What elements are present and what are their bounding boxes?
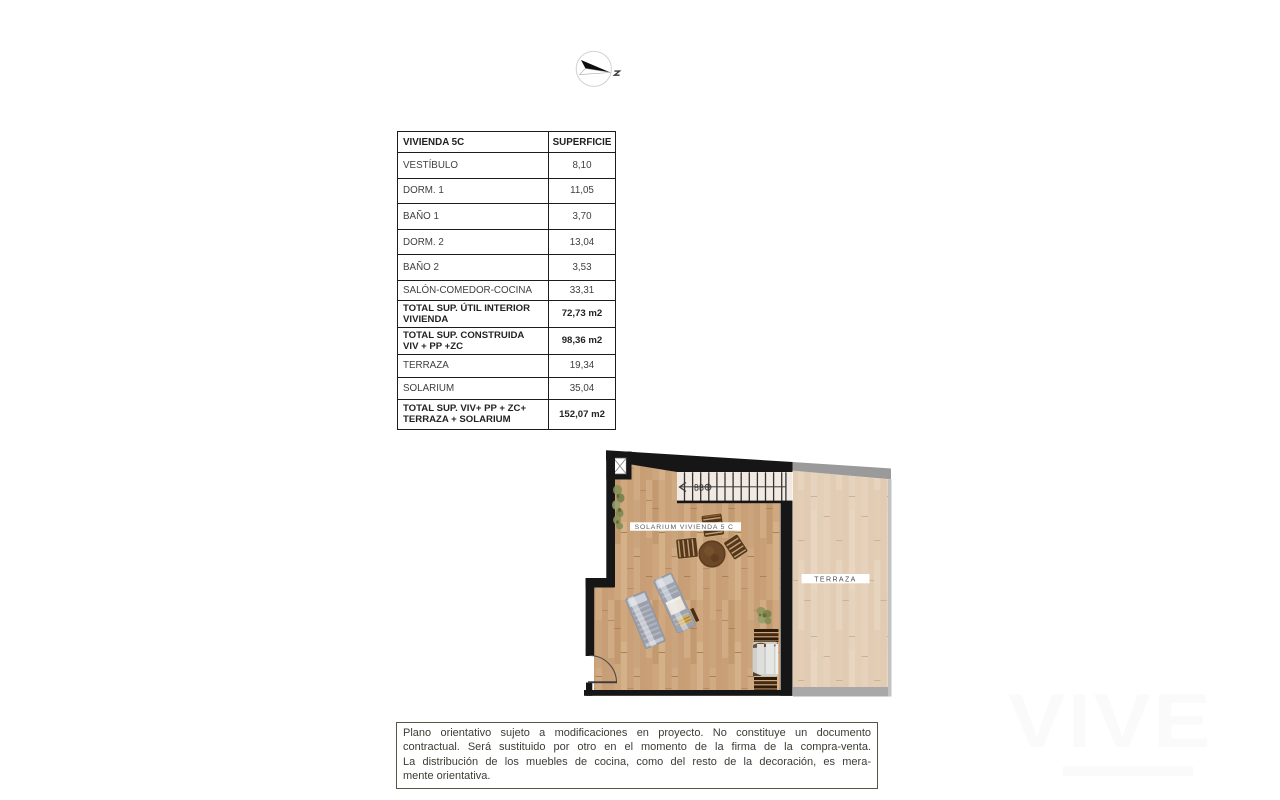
svg-text:SOLARIUM VIVIENDA 5 C: SOLARIUM VIVIENDA 5 C (635, 524, 734, 531)
svg-text:TERRAZA: TERRAZA (814, 576, 856, 583)
